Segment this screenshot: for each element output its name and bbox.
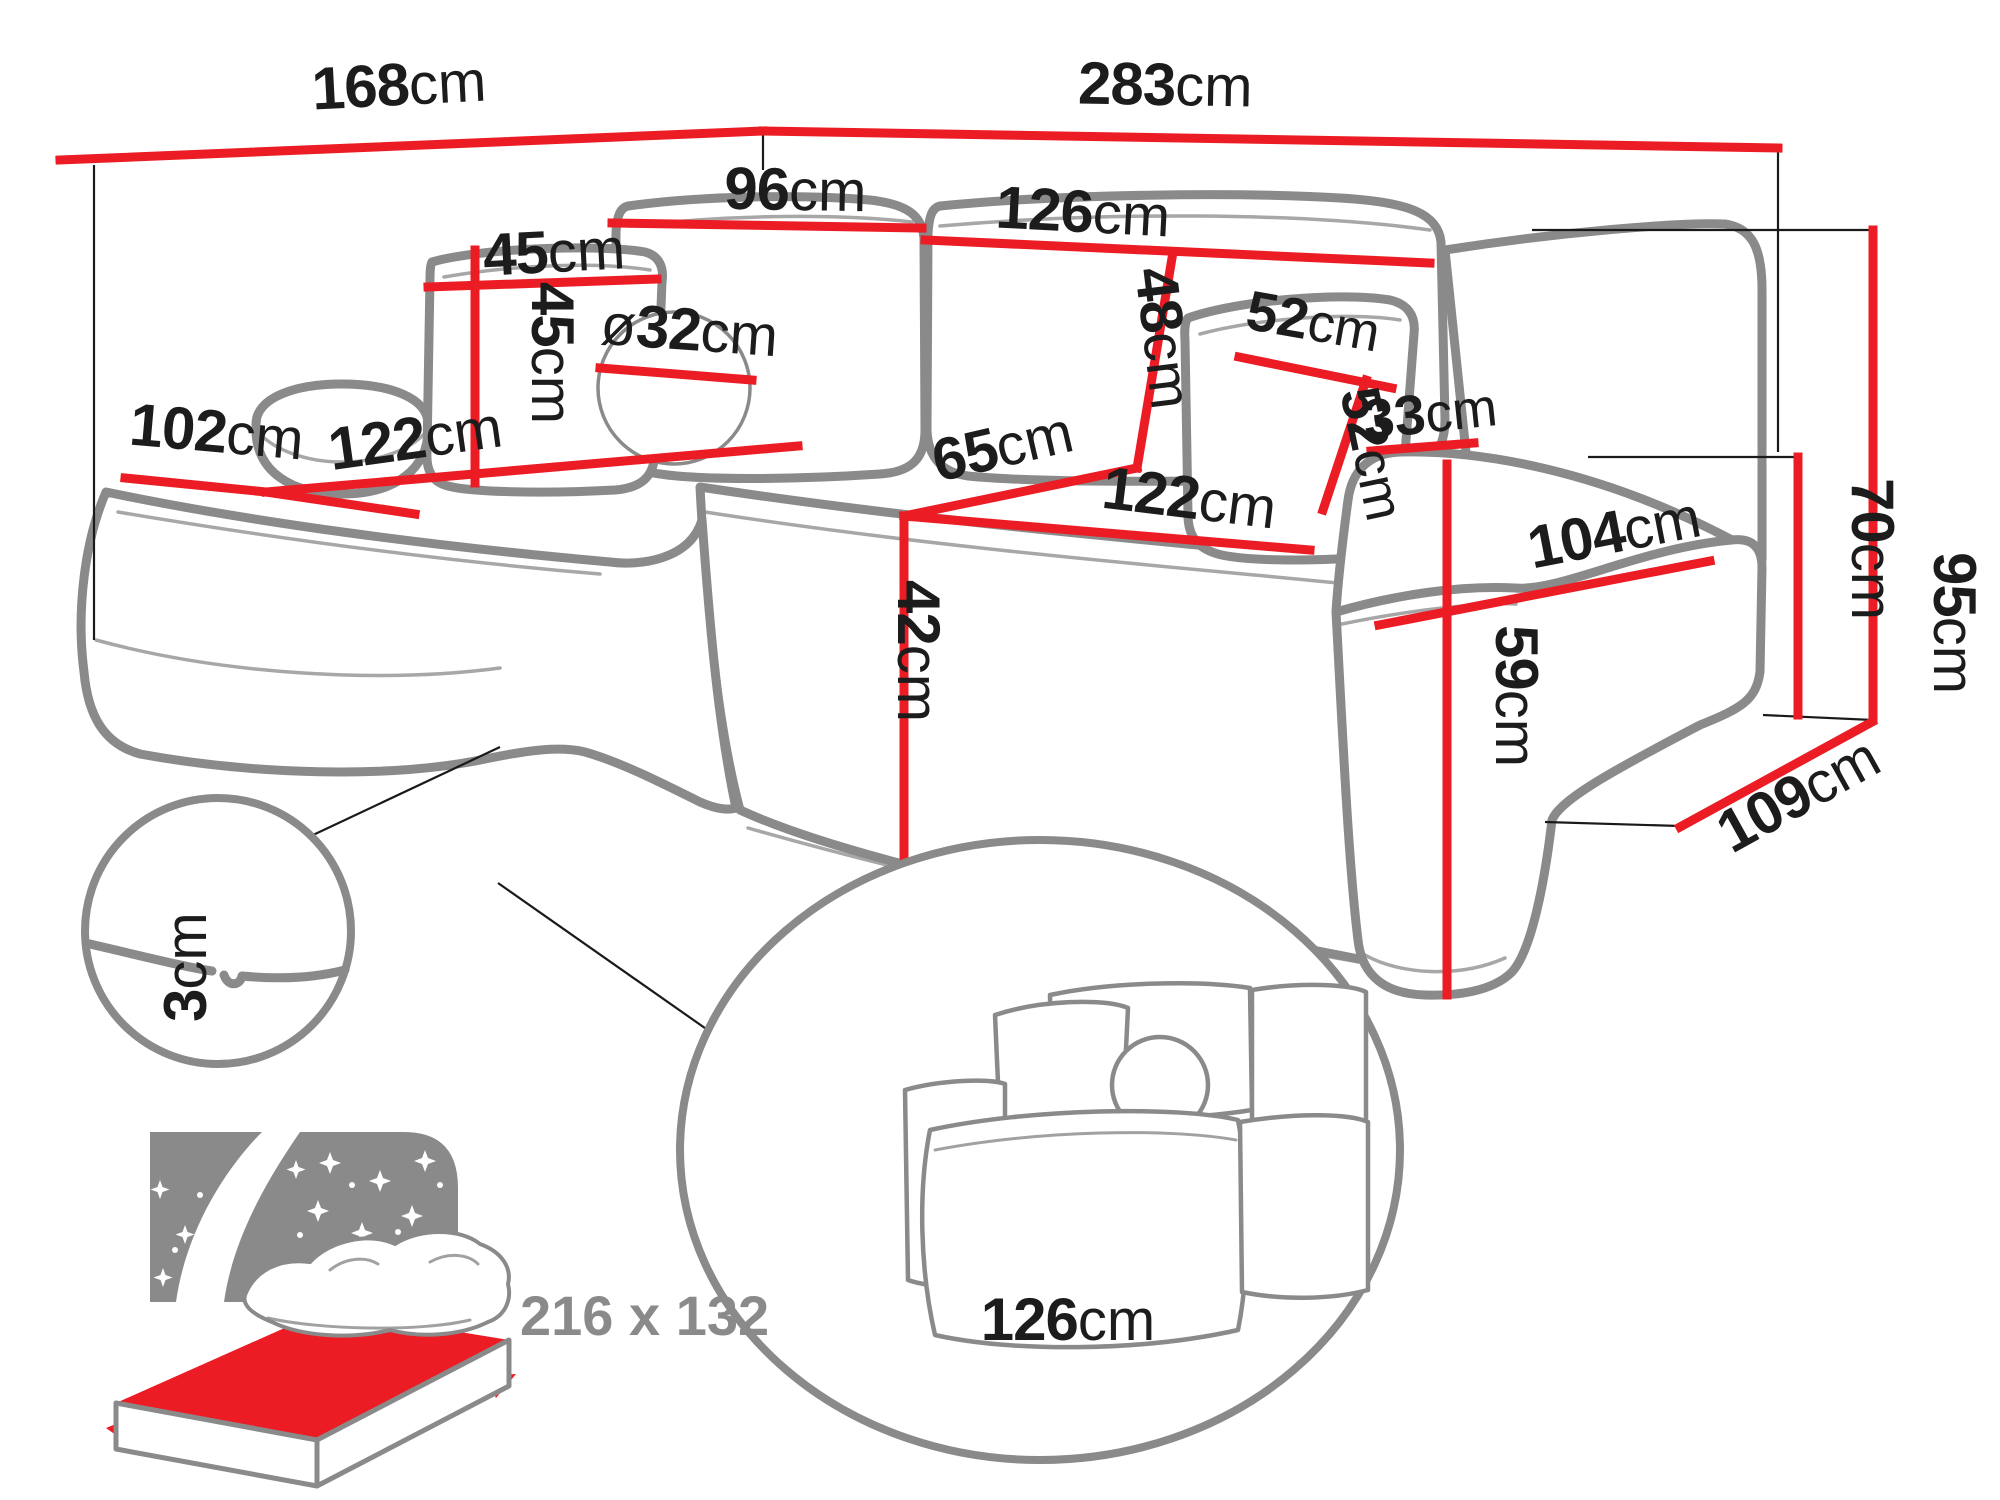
sofa-diagram-canvas: 168cm 283cm 96cm 126cm 45cm 45cm ø32cm 5… [0,0,2000,1500]
dim-pillow45-w-label: 45cm [481,214,626,288]
sleeping-function-icon [0,1132,509,1486]
dim-back-left-label: 96cm [724,155,867,224]
dim-width-left-label: 168cm [310,47,488,123]
dim-backrest-height-label: 70cm [1839,478,1906,620]
dim-back-right-label: 126cm [994,174,1172,250]
dim-back-left-line [612,223,922,228]
dim-width-right-label: 283cm [1078,49,1254,119]
detail-sleeping-width-label: 126cm [981,1286,1155,1353]
dim-width-right-line [763,131,1778,148]
dim-armrest-height-label: 59cm [1483,625,1550,767]
furniture-dimension-diagram: 168cm 283cm 96cm 126cm 45cm 45cm ø32cm 5… [0,0,2000,1500]
detail-circle-sleeping [680,840,1400,1460]
mini-right-cushion [1252,985,1366,1134]
sleeping-area-size-label: 216 x 132 [520,1284,769,1347]
dim-pillow45-h-label: 45cm [519,282,586,424]
dim-seat-height-label: 42cm [885,580,952,722]
dim-width-left-line [60,131,763,160]
dim-total-height-label: 95cm [1921,552,1988,694]
dim-total-depth-label: 109cm [1706,722,1891,865]
chaise-section [81,492,736,809]
mini-right-seat [1240,1115,1368,1298]
detail-clearance-label: 3cm [152,912,219,1022]
dim-round-cushion-label: ø32cm [599,290,781,369]
